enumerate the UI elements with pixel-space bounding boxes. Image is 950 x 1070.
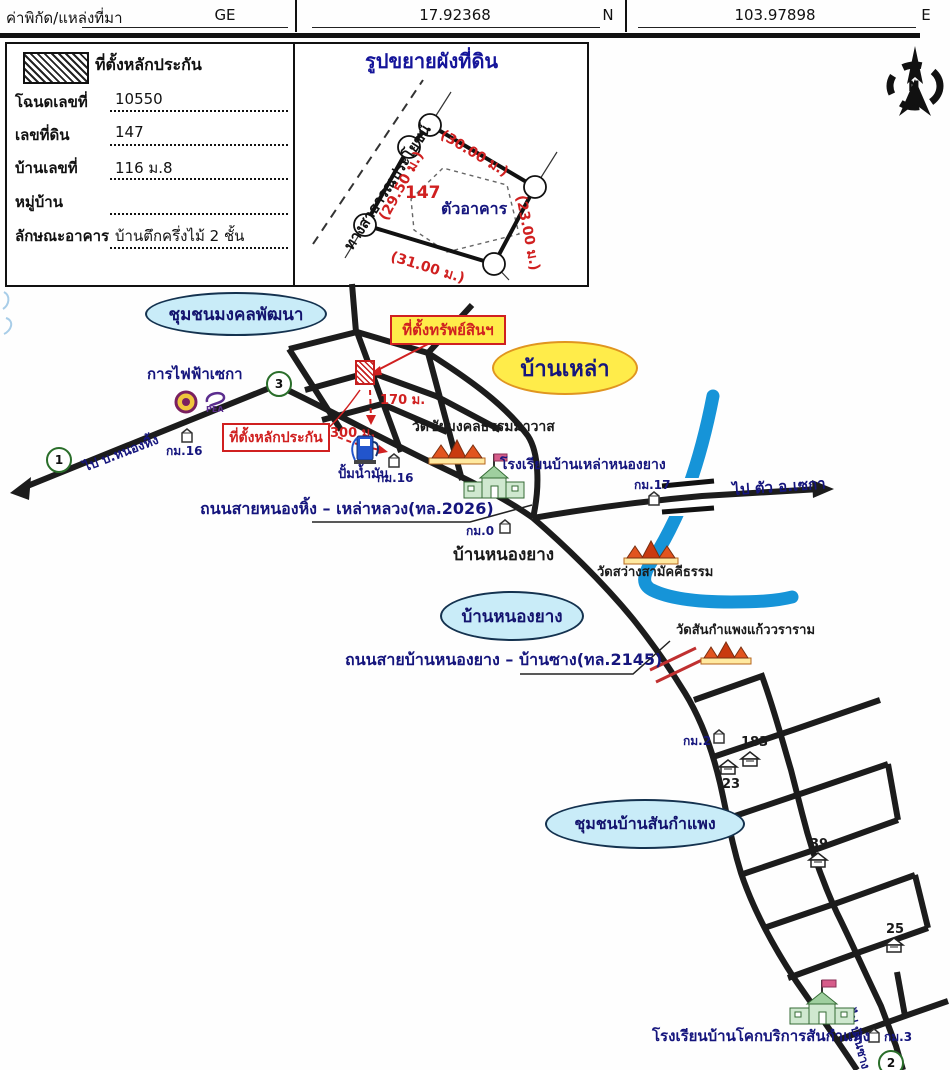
property-marker-icon (355, 360, 375, 385)
temple-3-icon (698, 640, 754, 666)
route-circle-3: 3 (266, 371, 292, 397)
village-ellipse-nongyang: บ้านหนองยาง (440, 591, 584, 641)
pea-logo-text: PEA (206, 406, 224, 415)
temple-1-label: วัดชัยมงคลธรรมมาวาส (412, 420, 555, 435)
house-183-label: 183 (741, 736, 768, 750)
road-2026-label: ถนนสายหนองหิ้ง – เหล่าหลวง(ทล.2026) (200, 500, 494, 518)
km3-label: กม.3 (884, 1031, 912, 1044)
km2-milestone-icon (711, 728, 727, 746)
pea-seal-icon (174, 390, 198, 414)
property-location-tag: ที่ตั้งทรัพย์สินฯ (390, 315, 506, 345)
temple-3-label: วัดสันกำแพงแก้ววราราม (676, 624, 815, 638)
distance-170m-label: 170 ม. (380, 394, 425, 408)
map-area: ชุมชนมงคลพัฒนา บ้านเหล่า บ้านหนองยาง ชุม… (0, 0, 950, 1070)
km0-milestone-icon (497, 518, 513, 536)
km0-label: กม.0 (466, 525, 494, 538)
arrow-west (10, 477, 31, 500)
village-ellipse-banlao: บ้านเหล่า (492, 341, 638, 395)
temple-2-icon (620, 538, 682, 566)
route-circle-2: 2 (878, 1050, 904, 1070)
house-23-icon (716, 758, 740, 776)
km17-milestone-icon (646, 490, 662, 508)
electric-authority-label: การไฟฟ้าเซกา (147, 366, 243, 383)
gas-station-icon (349, 430, 383, 468)
house-183-icon (738, 750, 762, 768)
road-network (20, 284, 948, 1070)
km16a-label: กม.16 (166, 445, 202, 458)
house-25-icon (882, 936, 906, 954)
house-39-icon (806, 851, 830, 869)
school-2-icon (786, 978, 858, 1028)
route-circle-1: 1 (46, 447, 72, 473)
school-1-label: โรงเรียนบ้านเหล่าหนองยาง (500, 458, 666, 473)
collateral-location-tag: ที่ตั้งหลักประกัน (222, 423, 330, 452)
village-nongyang-label: บ้านหนองยาง (453, 546, 554, 565)
house-23-label: 23 (722, 778, 740, 792)
km16a-milestone-icon (179, 427, 195, 445)
gas-station-label: ปั้มน้ำมัน (338, 468, 388, 482)
school-2-label: โรงเรียนบ้านโคกบริการสันกำแพง (652, 1028, 870, 1045)
community-ellipse-sankamphaeng: ชุมชนบ้านสันกำแพง (545, 799, 745, 849)
community-ellipse-mongkol: ชุมชนมงคลพัฒนา (145, 292, 327, 336)
land-location-map-document: ค่าพิกัด/แหล่งที่มา GE 17.92368 N 103.97… (0, 0, 950, 1070)
temple-2-label: วัดสว่างสามัคคีธรรม (597, 566, 713, 580)
road-2145-label: ถนนสายบ้านหนองยาง – บ้านซาง(ทล.2145) (345, 651, 662, 669)
km2-label: กม.2 (683, 735, 711, 748)
